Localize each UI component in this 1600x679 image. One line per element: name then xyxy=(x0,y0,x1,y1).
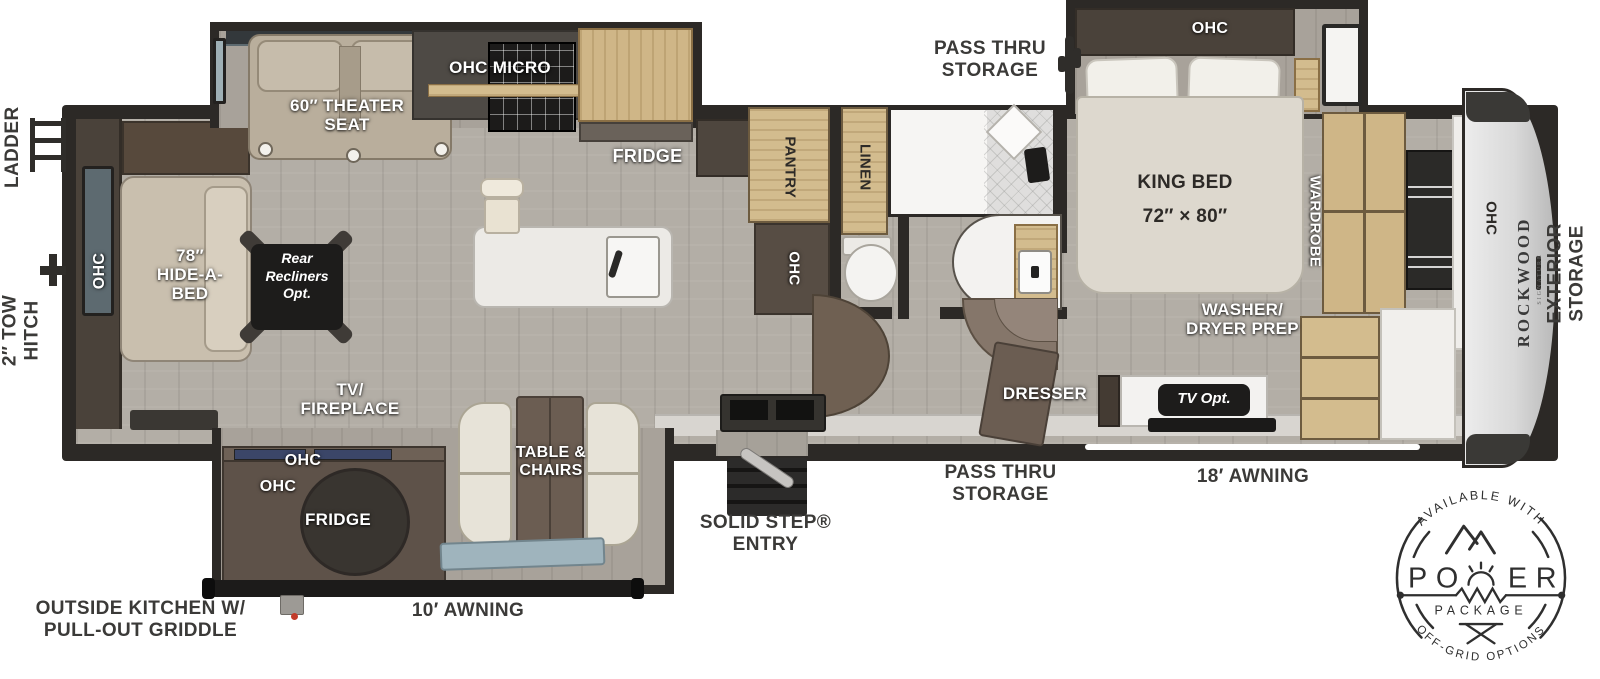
tow-hitch-icon xyxy=(40,254,66,286)
badge-sun-icon xyxy=(1469,563,1494,585)
badge-mountains-icon xyxy=(1446,526,1494,553)
tv-opt-label: TV Opt. xyxy=(1158,390,1250,407)
rockwood-series: SIGNATURE xyxy=(1537,234,1543,324)
kitchen-drawers xyxy=(579,122,693,142)
dresser-label: DRESSER xyxy=(990,384,1100,403)
rear-floor-mat xyxy=(130,410,218,430)
badge-bottom-arc-text: OFF-GRID OPTIONS xyxy=(1414,623,1549,664)
theater-cupholder-2 xyxy=(346,148,361,163)
badge-top-arc-text: AVAILABLE WITH xyxy=(1414,488,1549,528)
pantry-label: PANTRY xyxy=(781,122,798,212)
tow-hitch-label: 2″ TOW HITCH xyxy=(0,290,44,370)
wardrobe-label: WARDROBE xyxy=(1306,156,1323,286)
washer-dryer-label: WASHER/ DRYER PREP xyxy=(1155,300,1330,338)
dinette-rug xyxy=(440,537,606,571)
ladder-icon xyxy=(30,118,66,172)
awning-bracket xyxy=(280,595,304,615)
rear-ohc-label: OHC xyxy=(91,241,109,301)
hide-a-bed-label: 78″ HIDE-A- BED xyxy=(120,246,260,303)
mid-ohc-label: OHC xyxy=(785,238,802,298)
bedroom-slide-window xyxy=(1322,24,1362,106)
theater-cupholder-3 xyxy=(434,142,449,157)
wardrobe-cabinet xyxy=(1322,112,1406,314)
theater-cupholder-1 xyxy=(258,142,273,157)
king-bed-label: KING BED 72″ × 80″ xyxy=(1090,166,1280,234)
ohc-micro-label: OHC MICRO xyxy=(425,58,575,77)
badge-camp-table-icon xyxy=(1460,624,1502,643)
awning-10-label: 10′ AWNING xyxy=(378,600,558,622)
badge-inner-arc-tl xyxy=(1414,532,1429,557)
pass-thru-bottom-label: PASS THRU STORAGE xyxy=(928,462,1073,507)
table-chairs-label: TABLE & CHAIRS xyxy=(492,444,610,480)
outside-ohc-label-1: OHC xyxy=(268,452,338,470)
tv-opt-box: TV Opt. xyxy=(1158,384,1250,416)
badge-inner-arc-bl xyxy=(1417,605,1433,628)
bath-wall-left xyxy=(830,107,841,319)
awning-18-rail xyxy=(1085,444,1420,450)
power-package-badge: AVAILABLE WITH OFF-GRID OPTIONS PO ER PA… xyxy=(1385,482,1577,674)
exterior-storage-label: EXTERIOR STORAGE xyxy=(1545,213,1590,333)
theater-seat-label: 60″ THEATER SEAT xyxy=(252,96,442,134)
ladder-label: LADDER xyxy=(2,99,24,195)
vanity-faucet xyxy=(1031,266,1039,278)
awning-18-label: 18′ AWNING xyxy=(1168,466,1338,488)
bath-wall-inner xyxy=(898,214,909,319)
badge-inner-arc-tr xyxy=(1533,532,1548,557)
rear-recliners-label: Rear Recliners Opt. xyxy=(251,250,343,303)
awning-10-rail xyxy=(208,580,638,597)
washer-dryer-cabinet xyxy=(1380,308,1456,440)
slideout-left-window xyxy=(213,38,226,104)
entry-griddle xyxy=(720,394,826,432)
kitchen-fridge-label: FRIDGE xyxy=(595,146,700,166)
floorplan-canvas: LADDER 2″ TOW HITCH EXTERIOR STORAGE PAS… xyxy=(0,0,1600,679)
shower-valve xyxy=(1024,147,1051,184)
badge-package-text: PACKAGE xyxy=(1435,603,1528,617)
counter-bar-top xyxy=(428,84,580,97)
svg-text:OFF-GRID OPTIONS: OFF-GRID OPTIONS xyxy=(1414,623,1549,664)
badge-inner-arc-br xyxy=(1529,605,1545,628)
tv-fireplace-label: TV/ FIREPLACE xyxy=(280,380,420,418)
awning-10-cap-right xyxy=(631,578,644,599)
awning-10-cap-left xyxy=(202,578,215,599)
entry-door-gap xyxy=(716,430,808,456)
toilet-bowl xyxy=(844,244,898,302)
theater-seat-back-left xyxy=(257,40,343,92)
rockwood-brand: ROCKWOOD xyxy=(1514,207,1534,357)
linen-label: LINEN xyxy=(856,127,873,207)
outside-fridge-label: FRIDGE xyxy=(288,510,388,529)
island-stool-seat xyxy=(484,198,520,234)
front-ohc-label: OHC xyxy=(1482,188,1499,248)
outside-ohc-label-2: OHC xyxy=(243,478,313,496)
tv-stand-side xyxy=(1098,375,1120,427)
badge-power-left: PO xyxy=(1408,563,1467,595)
awning-bracket-light xyxy=(291,613,298,620)
tv-screen xyxy=(1148,418,1276,432)
front-cap-corner-top xyxy=(1466,92,1530,122)
solid-step-entry-label: SOLID STEP® ENTRY xyxy=(683,512,848,557)
bed-ohc-label: OHC xyxy=(1175,20,1245,38)
outside-kitchen-label: OUTSIDE KITCHEN W/ PULL-OUT GRIDDLE xyxy=(8,598,273,643)
svg-text:AVAILABLE WITH: AVAILABLE WITH xyxy=(1414,488,1549,528)
rear-console-cabinet xyxy=(122,121,250,175)
corner-cabinet xyxy=(696,119,750,177)
island-stool xyxy=(480,178,524,198)
badge-power-right: ER xyxy=(1508,563,1565,595)
rear-recliners-box: Rear Recliners Opt. xyxy=(251,244,343,330)
pantry-wall-cabinet xyxy=(578,28,693,122)
pass-thru-top-label: PASS THRU STORAGE xyxy=(915,38,1065,83)
